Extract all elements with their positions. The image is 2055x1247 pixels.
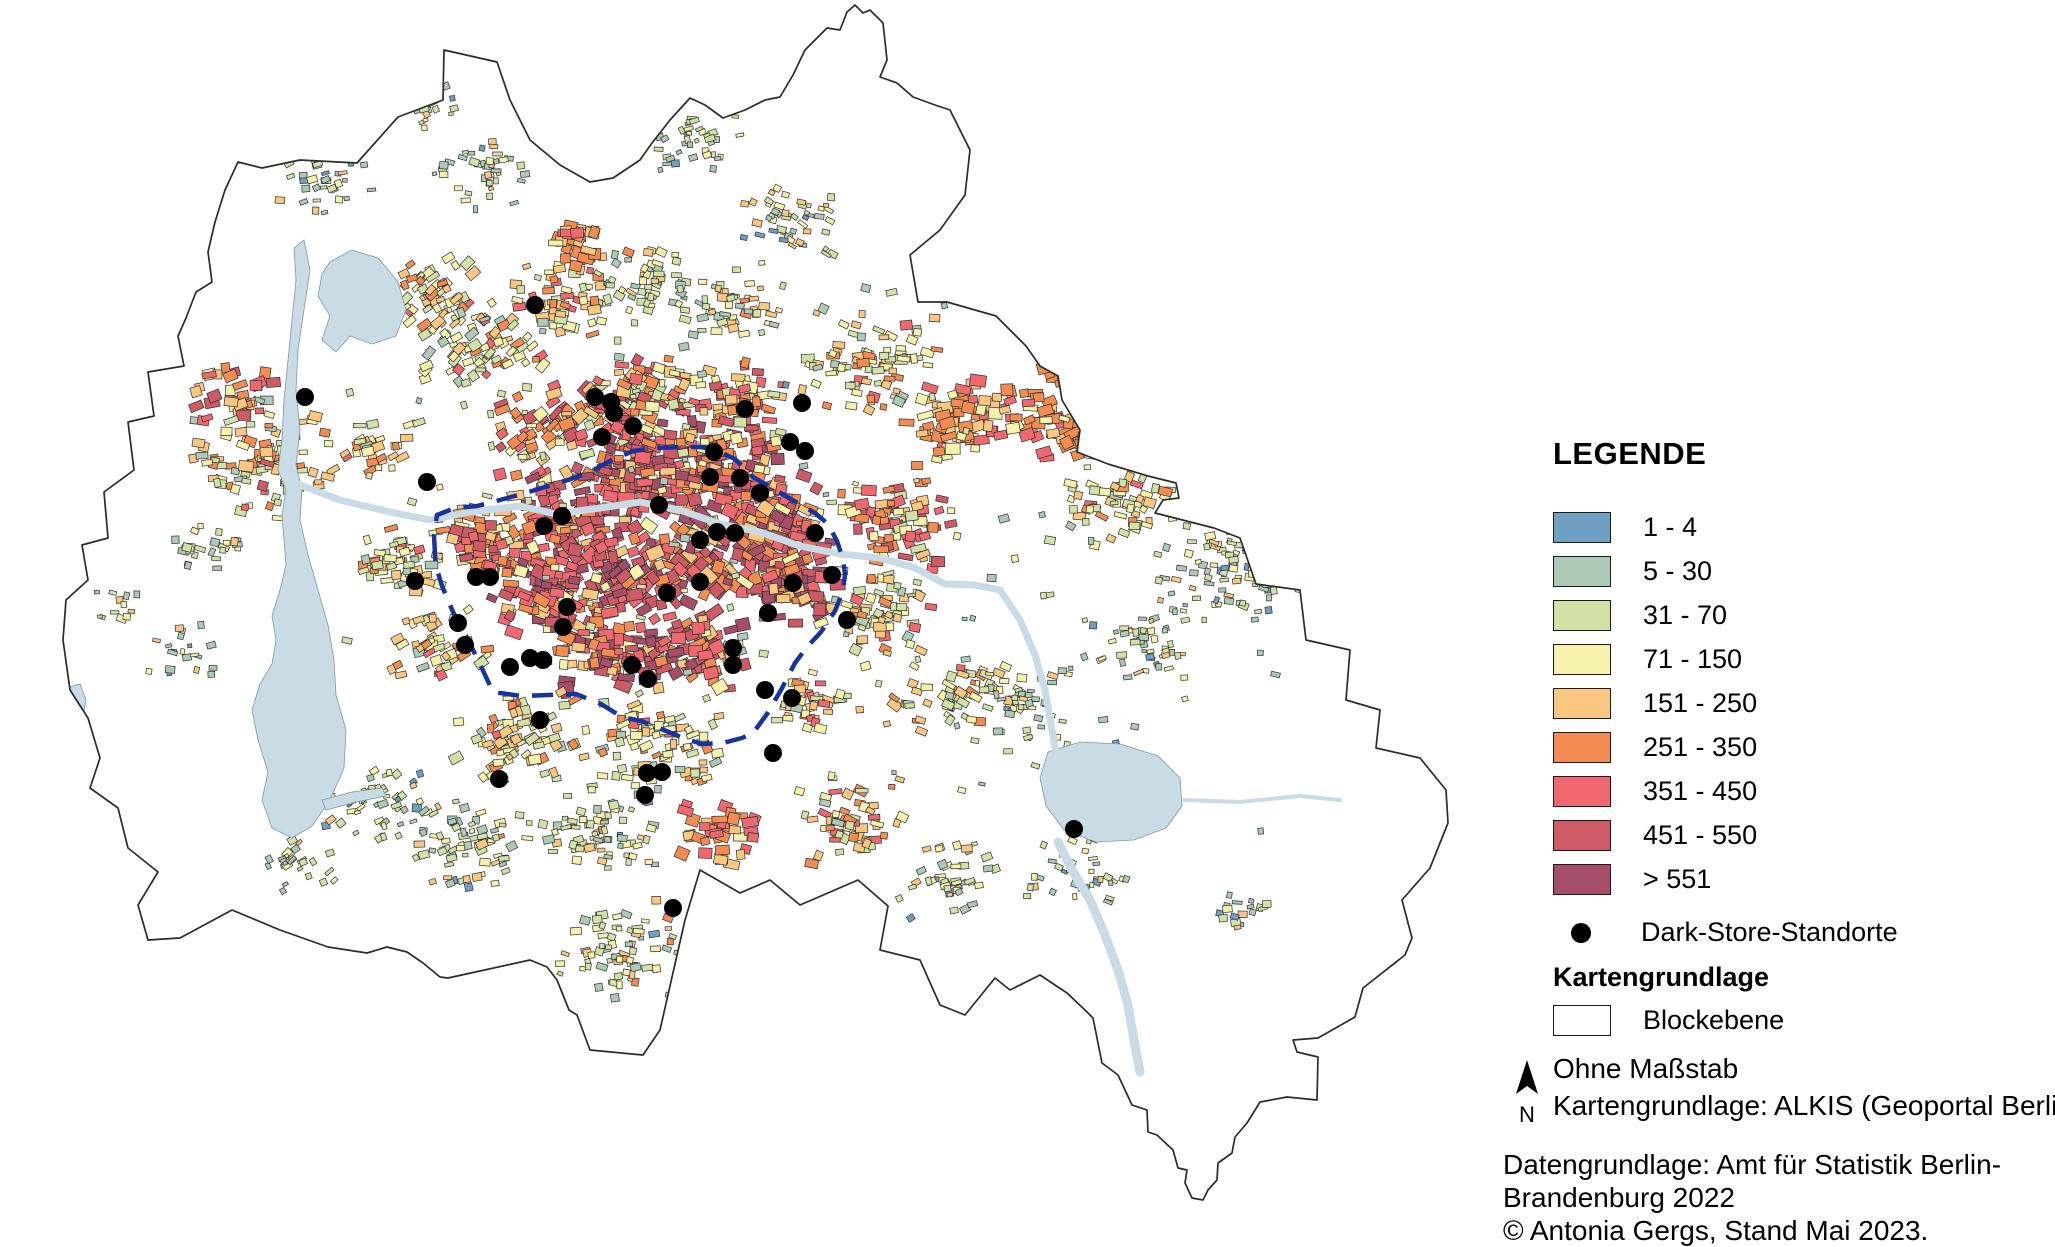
legend-class-row: 71 - 150 — [1553, 644, 2055, 675]
legend-class-label: 31 - 70 — [1643, 600, 1727, 631]
darkstore-dot — [701, 468, 719, 486]
darkstore-dot — [296, 388, 314, 406]
darkstore-dot — [531, 711, 549, 729]
darkstore-dot — [1065, 820, 1083, 838]
darkstore-dot — [783, 689, 801, 707]
legend-class-swatch — [1553, 644, 1611, 675]
darkstore-dot — [623, 656, 641, 674]
darkstore-dot — [796, 442, 814, 460]
legend-class-swatch — [1553, 732, 1611, 763]
north-arrow-glyph — [1514, 1060, 1540, 1096]
darkstore-dot — [593, 428, 611, 446]
base-source: Kartengrundlage: ALKIS (Geoportal Berlin… — [1553, 1087, 2055, 1124]
darkstore-dot — [793, 394, 811, 412]
darkstore-dot — [838, 611, 856, 629]
darkstore-dot — [724, 639, 742, 657]
darkstore-dot — [764, 744, 782, 762]
darkstore-dot — [639, 670, 657, 688]
legend-section-title: Kartengrundlage — [1553, 962, 2055, 993]
darkstore-dot — [731, 469, 749, 487]
darkstore-dot — [605, 404, 623, 422]
legend-title: LEGENDE — [1553, 436, 2055, 472]
legend-class-row: 5 - 30 — [1553, 556, 2055, 587]
darkstore-dot — [724, 656, 742, 674]
darkstore-dot — [759, 604, 777, 622]
credits-line1: Datengrundlage: Amt für Statistik Berlin… — [1503, 1148, 2055, 1181]
darkstore-dot — [456, 636, 474, 654]
darkstore-dot — [501, 658, 519, 676]
darkstore-dot — [784, 574, 802, 592]
legend-class-label: > 551 — [1643, 864, 1711, 895]
berlin-block-map — [0, 0, 1500, 1247]
darkstore-dot — [624, 417, 642, 435]
legend-class-label: 71 - 150 — [1643, 644, 1742, 675]
darkstore-dot — [553, 507, 571, 525]
darkstore-dot — [521, 649, 539, 667]
north-arrow-n: N — [1512, 1102, 1542, 1128]
darkstore-dot — [691, 573, 709, 591]
darkstore-dot — [481, 568, 499, 586]
darkstore-dot — [526, 296, 544, 314]
darkstore-dot — [823, 566, 841, 584]
darkstore-dot — [653, 763, 671, 781]
scale-block: N Ohne Maßstab Kartengrundlage: ALKIS (G… — [1553, 1050, 2055, 1124]
darkstore-dot — [650, 496, 668, 514]
darkstore-dot — [756, 681, 774, 699]
darkstore-dot — [586, 388, 604, 406]
blockebene-swatch — [1553, 1005, 1611, 1036]
figure: LEGENDE 1 - 45 - 3031 - 7071 - 150151 - … — [0, 0, 2055, 1247]
legend-class-label: 151 - 250 — [1643, 688, 1757, 719]
darkstore-dot — [418, 473, 436, 491]
darkstore-dot — [705, 443, 723, 461]
legend-class-row: 251 - 350 — [1553, 732, 2055, 763]
legend-darkstore-row: Dark-Store-Standorte — [1553, 917, 2055, 948]
legend-class-swatch — [1553, 820, 1611, 851]
credits-line2: Brandenburg 2022 — [1503, 1181, 2055, 1214]
darkstore-dot — [558, 598, 576, 616]
darkstore-dot — [664, 899, 682, 917]
legend-class-label: 451 - 550 — [1643, 820, 1757, 851]
darkstore-dot — [406, 572, 424, 590]
darkstore-dot — [736, 400, 754, 418]
legend-class-label: 251 - 350 — [1643, 732, 1757, 763]
credits-line3: © Antonia Gergs, Stand Mai 2023. — [1503, 1214, 2055, 1247]
darkstore-dot — [554, 618, 572, 636]
legend-class-label: 5 - 30 — [1643, 556, 1712, 587]
legend-class-row: 151 - 250 — [1553, 688, 2055, 719]
legend-class-label: 351 - 450 — [1643, 776, 1757, 807]
darkstore-dot — [636, 786, 654, 804]
blockebene-label: Blockebene — [1643, 1005, 1784, 1036]
legend-class-label: 1 - 4 — [1643, 512, 1697, 543]
darkstore-dot — [806, 524, 824, 542]
darkstore-dot — [535, 517, 553, 535]
legend-class-swatch — [1553, 776, 1611, 807]
legend-class-swatch — [1553, 864, 1611, 895]
legend-class-row: 451 - 550 — [1553, 820, 2055, 851]
legend-class-swatch — [1553, 512, 1611, 543]
legend-class-row: 351 - 450 — [1553, 776, 2055, 807]
darkstore-dot — [490, 770, 508, 788]
darkstore-dot — [708, 523, 726, 541]
darkstore-dot — [781, 433, 799, 451]
legend-class-swatch — [1553, 600, 1611, 631]
darkstore-dot — [449, 614, 467, 632]
legend-class-swatch — [1553, 688, 1611, 719]
legend-blockebene-row: Blockebene — [1553, 1005, 2055, 1036]
darkstore-dot — [751, 484, 769, 502]
legend-class-row: > 551 — [1553, 864, 2055, 895]
north-arrow-icon: N — [1512, 1060, 1542, 1128]
scale-note: Ohne Maßstab — [1553, 1050, 2055, 1087]
darkstore-dot — [691, 531, 709, 549]
darkstore-dot-icon — [1553, 923, 1609, 943]
credits: Datengrundlage: Amt für Statistik Berlin… — [1503, 1148, 2055, 1247]
water-gross-glienicker-see — [62, 684, 86, 726]
darkstore-dot — [726, 524, 744, 542]
legend-class-row: 31 - 70 — [1553, 600, 2055, 631]
legend-class-swatch — [1553, 556, 1611, 587]
legend-class-row: 1 - 4 — [1553, 512, 2055, 543]
darkstore-label: Dark-Store-Standorte — [1641, 917, 1898, 948]
legend-class-list: 1 - 45 - 3031 - 7071 - 150151 - 250251 -… — [1553, 512, 2055, 895]
darkstore-dot — [658, 584, 676, 602]
legend-panel: LEGENDE 1 - 45 - 3031 - 7071 - 150151 - … — [1503, 436, 2055, 1124]
